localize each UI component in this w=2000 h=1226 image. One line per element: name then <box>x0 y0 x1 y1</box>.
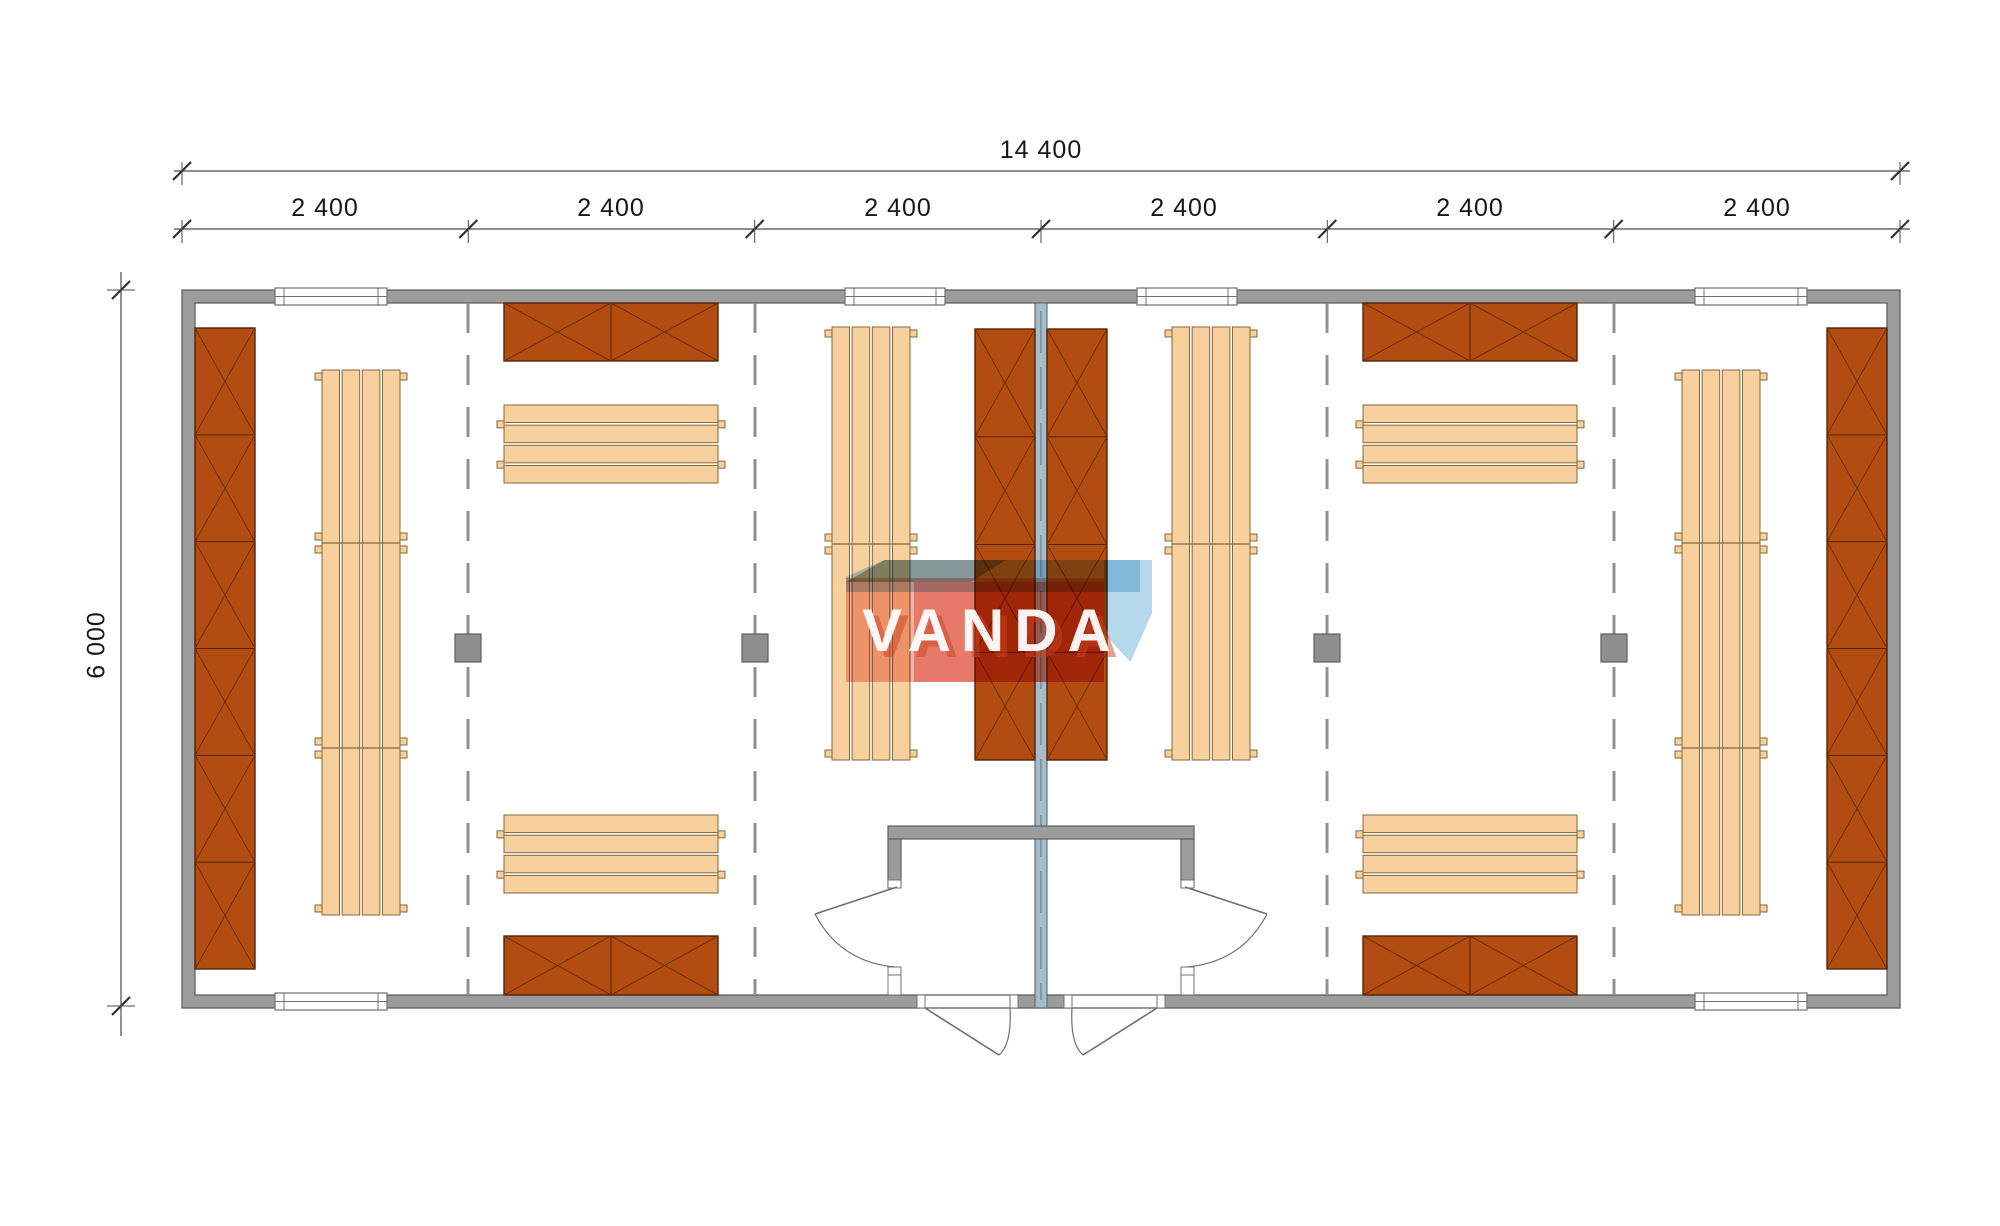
bench-bottom-module2-slat <box>504 815 718 833</box>
dimension-module-6: 2 400 <box>1723 194 1791 223</box>
bench-bottom-module5-slat <box>1363 855 1577 873</box>
bench-foot-tab <box>1250 330 1257 337</box>
floor-plan-drawing <box>0 0 2000 1226</box>
bench-foot-tab <box>825 750 832 757</box>
bench-foot-tab <box>825 547 832 554</box>
door-jamb <box>888 975 901 995</box>
bench-foot-tab <box>718 871 725 878</box>
bench-foot-tab <box>1165 750 1172 757</box>
bench-group-module6-slat <box>1742 370 1760 915</box>
bench-group-module6-slat <box>1682 370 1700 915</box>
bench-foot-tab <box>497 871 504 878</box>
bench-group-module6-slat <box>1722 370 1740 915</box>
bench-top-module2-slat <box>504 445 718 463</box>
bench-bottom-module2-slat <box>504 855 718 873</box>
door-jamb <box>917 995 925 1008</box>
vestibule-door-leaf <box>1185 887 1267 914</box>
bench-foot-tab <box>315 533 322 540</box>
entrance-door-swing-arc <box>999 1008 1010 1055</box>
bench-foot-tab <box>400 738 407 745</box>
bench-foot-tab <box>1675 533 1682 540</box>
bench-foot-tab <box>718 421 725 428</box>
bench-foot-tab <box>1760 751 1767 758</box>
vestibule-door-leaf <box>815 887 897 914</box>
bench-foot-tab <box>1675 751 1682 758</box>
dimension-module-3: 2 400 <box>864 194 932 223</box>
bench-foot-tab <box>315 905 322 912</box>
bench-foot-tab <box>400 373 407 380</box>
bench-foot-tab <box>315 546 322 553</box>
door-jamb <box>1181 967 1194 975</box>
bench-foot-tab <box>1760 546 1767 553</box>
bench-top-module2-slat <box>504 425 718 443</box>
bench-foot-tab <box>1760 533 1767 540</box>
column <box>1314 634 1340 662</box>
vestibule-door-swing-arc <box>1187 914 1267 967</box>
bench-group-module1-slat <box>382 370 400 915</box>
dimension-module-5: 2 400 <box>1436 194 1504 223</box>
bench-group-module1-slat <box>362 370 380 915</box>
bench-foot-tab <box>497 421 504 428</box>
bench-foot-tab <box>315 751 322 758</box>
bench-foot-tab <box>718 831 725 838</box>
bench-foot-tab <box>400 546 407 553</box>
bench-foot-tab <box>1577 831 1584 838</box>
bench-bottom-module2-slat <box>504 875 718 893</box>
bench-foot-tab <box>1250 534 1257 541</box>
column <box>1601 634 1627 662</box>
bench-foot-tab <box>1675 373 1682 380</box>
bench-foot-tab <box>1250 547 1257 554</box>
bench-bottom-module5-slat <box>1363 875 1577 893</box>
bench-foot-tab <box>1760 738 1767 745</box>
wall-left <box>182 290 195 1008</box>
bench-foot-tab <box>910 547 917 554</box>
bench-top-module2-slat <box>504 465 718 483</box>
bench-foot-tab <box>1250 750 1257 757</box>
door-jamb <box>1157 995 1165 1008</box>
bench-foot-tab <box>1356 871 1363 878</box>
bench-group-module1-slat <box>322 370 340 915</box>
dimension-total-width: 14 400 <box>1000 136 1082 165</box>
bench-foot-tab <box>1165 534 1172 541</box>
bench-foot-tab <box>1675 546 1682 553</box>
door-jamb <box>1181 975 1194 995</box>
bench-foot-tab <box>400 533 407 540</box>
entrance-door-swing-arc <box>1072 1008 1083 1055</box>
bench-foot-tab <box>1356 831 1363 838</box>
bench-foot-tab <box>1356 461 1363 468</box>
bench-foot-tab <box>497 831 504 838</box>
entrance-door-leaf <box>925 1008 999 1055</box>
dimension-module-2: 2 400 <box>577 194 645 223</box>
bench-top-module5-slat <box>1363 445 1577 463</box>
bench-top-module2-slat <box>504 405 718 423</box>
dimension-height: 6 000 <box>83 611 112 679</box>
bench-foot-tab <box>1577 421 1584 428</box>
bench-group-module1-slat <box>342 370 360 915</box>
bench-foot-tab <box>825 330 832 337</box>
bench-foot-tab <box>1577 461 1584 468</box>
door-jamb <box>1181 880 1194 888</box>
bench-foot-tab <box>910 534 917 541</box>
dimension-module-1: 2 400 <box>291 194 359 223</box>
entrance-door-leaf <box>1083 1008 1157 1055</box>
column <box>455 634 481 662</box>
bench-foot-tab <box>400 751 407 758</box>
door-jamb <box>888 967 901 975</box>
bench-foot-tab <box>1760 905 1767 912</box>
bench-foot-tab <box>910 330 917 337</box>
bench-foot-tab <box>1675 738 1682 745</box>
bench-foot-tab <box>315 738 322 745</box>
bench-bottom-module5-slat <box>1363 815 1577 833</box>
vestibule-top-wall <box>888 826 1194 839</box>
bench-foot-tab <box>315 373 322 380</box>
bench-foot-tab <box>497 461 504 468</box>
bench-top-module5-slat <box>1363 465 1577 483</box>
bench-foot-tab <box>1165 547 1172 554</box>
floor-plan-page: 14 400 2 400 2 400 2 400 2 400 2 400 2 4… <box>0 0 2000 1226</box>
bench-foot-tab <box>718 461 725 468</box>
door-jamb <box>888 880 901 888</box>
bench-foot-tab <box>400 905 407 912</box>
dimension-module-4: 2 400 <box>1150 194 1218 223</box>
bench-group-module6-slat <box>1702 370 1720 915</box>
bench-bottom-module5-slat <box>1363 835 1577 853</box>
vestibule-door-swing-arc <box>815 914 895 967</box>
wall-right <box>1887 290 1900 1008</box>
bench-foot-tab <box>1760 373 1767 380</box>
bench-foot-tab <box>910 750 917 757</box>
bench-bottom-module2-slat <box>504 835 718 853</box>
bench-foot-tab <box>1577 871 1584 878</box>
column <box>742 634 768 662</box>
bench-foot-tab <box>1165 330 1172 337</box>
wall-top <box>182 290 1900 303</box>
bench-top-module5-slat <box>1363 425 1577 443</box>
door-jamb <box>1010 995 1018 1008</box>
bench-foot-tab <box>1356 421 1363 428</box>
bench-foot-tab <box>825 534 832 541</box>
door-jamb <box>1064 995 1072 1008</box>
bench-top-module5-slat <box>1363 405 1577 423</box>
bench-foot-tab <box>1675 905 1682 912</box>
